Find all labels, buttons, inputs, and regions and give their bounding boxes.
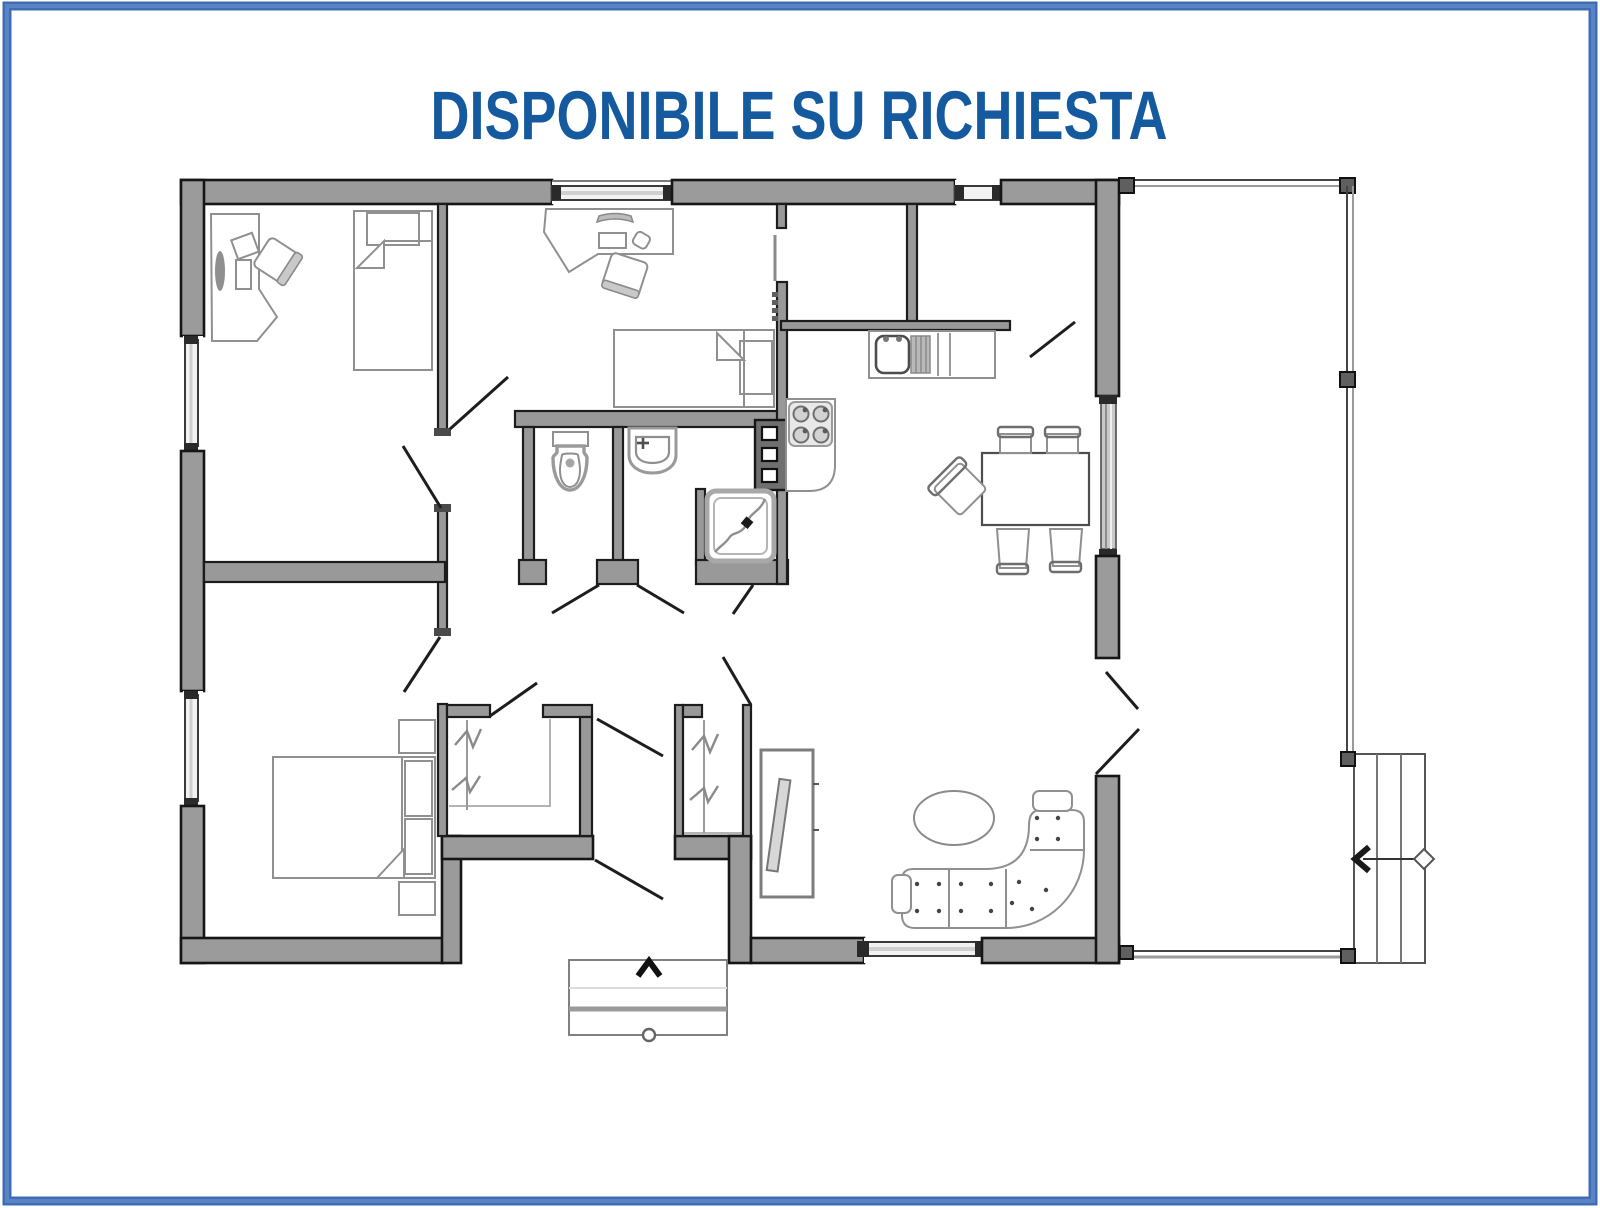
svg-text:DISPONIBILE SU RICHIESTA: DISPONIBILE SU RICHIESTA (431, 77, 1168, 154)
